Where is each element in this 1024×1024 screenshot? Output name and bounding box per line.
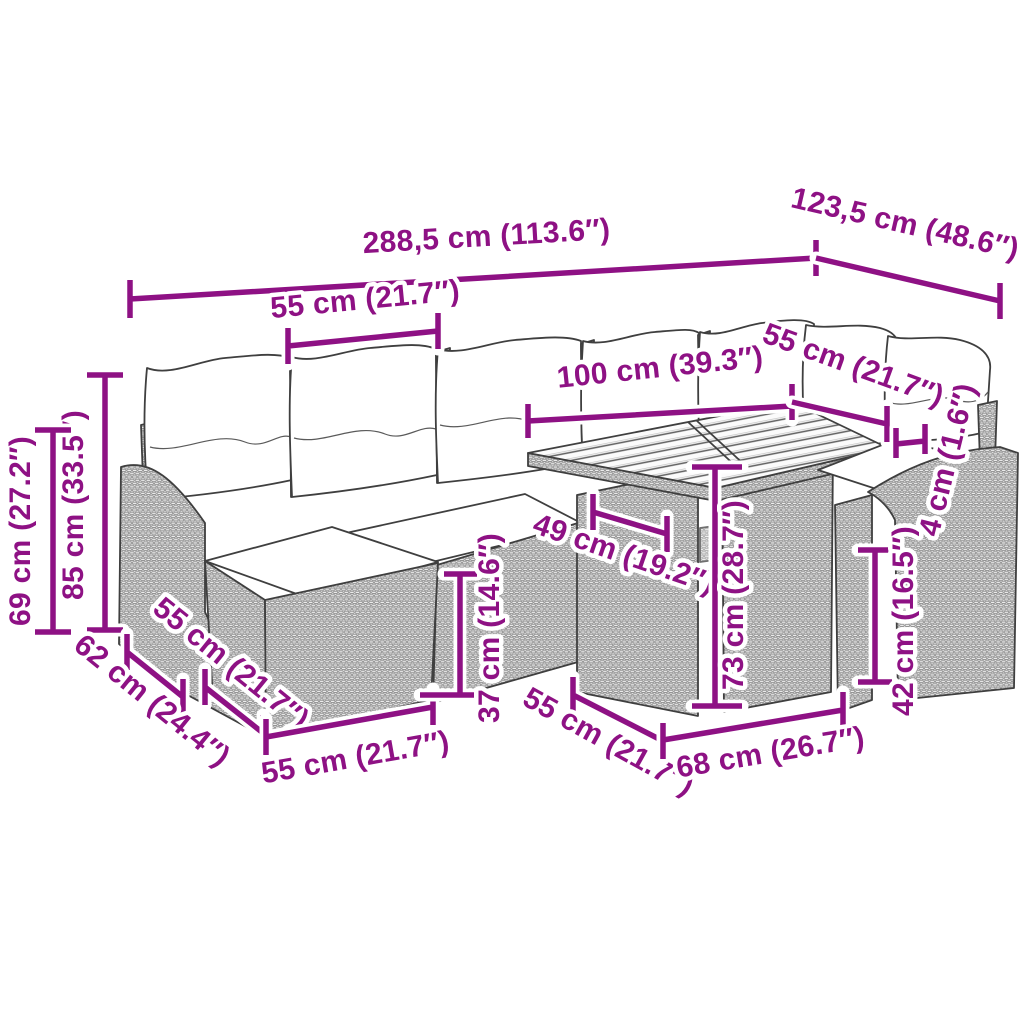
dim-table-height-label: 73 cm (28.7″) (717, 500, 750, 690)
dim-overall-depth: 123,5 cm (48.6″) (788, 181, 1022, 319)
back-pillow-2 (290, 345, 437, 497)
diagram-canvas: 288,5 cm (113.6″) 123,5 cm (48.6″) 55 cm… (0, 0, 1024, 1024)
dim-overall-width-label: 288,5 cm (113.6″) (362, 213, 611, 260)
product-dimension-diagram: 288,5 cm (113.6″) 123,5 cm (48.6″) 55 cm… (0, 0, 1024, 1024)
dim-total-height-label: 85 cm (33.5″) (57, 410, 90, 600)
dim-overall-width: 288,5 cm (113.6″) (130, 213, 816, 318)
dim-side-height-label: 42 cm (16.5″) (887, 526, 920, 716)
dim-backrest-height-label: 69 cm (27.2″) (4, 436, 37, 626)
dim-seat-height-label: 37 cm (14.6″) (473, 533, 506, 723)
dim-total-height: 85 cm (33.5″) (57, 375, 123, 630)
